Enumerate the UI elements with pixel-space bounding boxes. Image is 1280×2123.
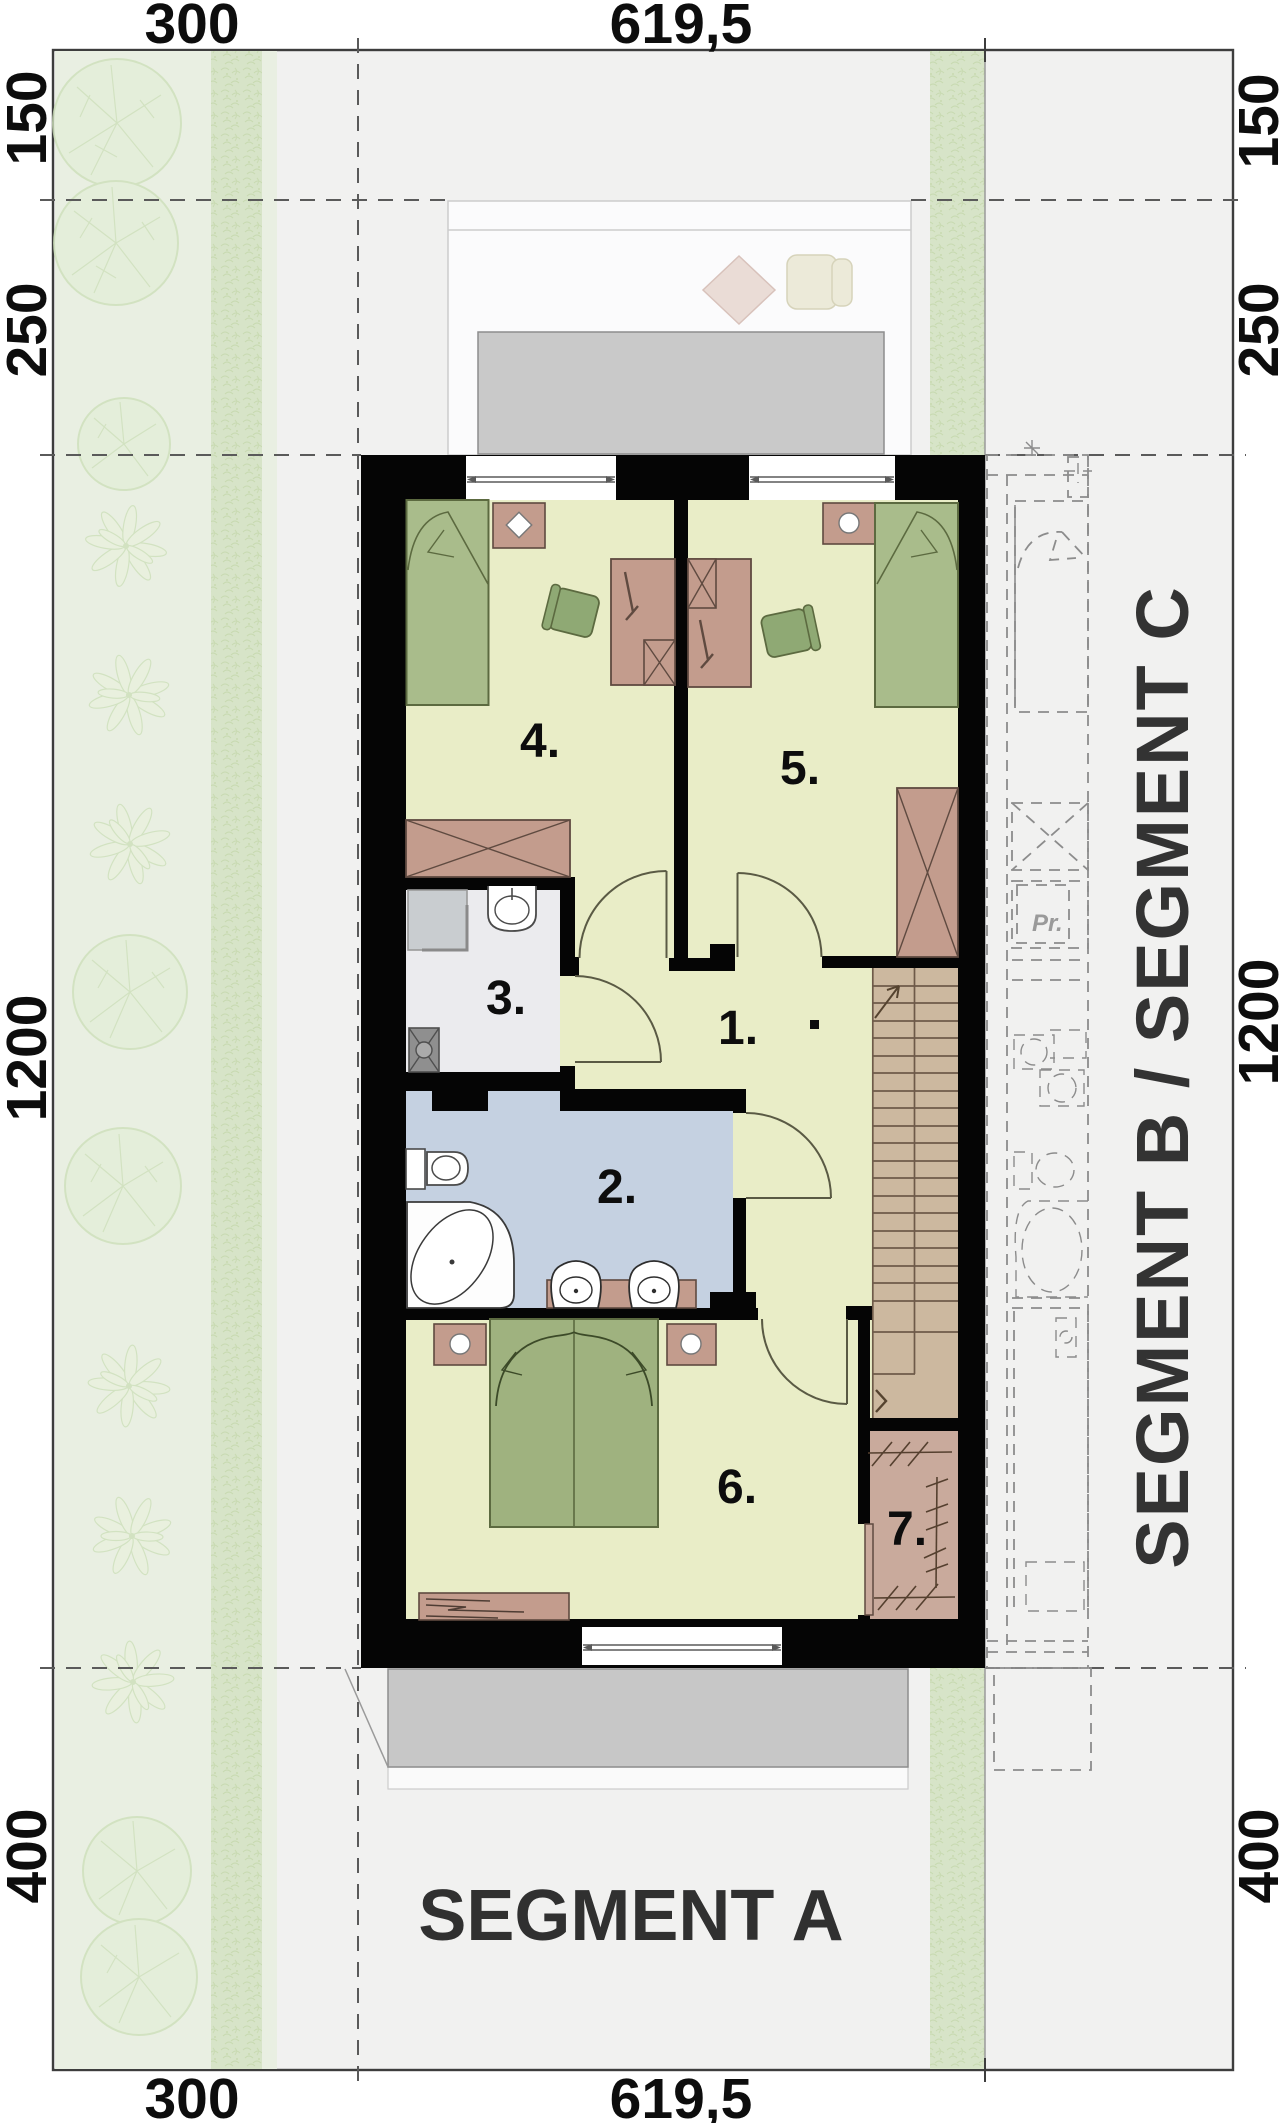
svg-text:619,5: 619,5 (610, 0, 753, 56)
svg-text:150: 150 (0, 70, 59, 165)
svg-text:SEGMENT B / SEGMENT C: SEGMENT B / SEGMENT C (1121, 585, 1204, 1569)
svg-text:400: 400 (1227, 1808, 1280, 1903)
svg-text:400: 400 (0, 1808, 59, 1903)
svg-text:150: 150 (1227, 73, 1280, 168)
svg-text:1200: 1200 (0, 995, 59, 1122)
svg-text:250: 250 (1227, 282, 1280, 377)
svg-text:1.: 1. (718, 1002, 758, 1055)
svg-text:SEGMENT A: SEGMENT A (418, 1876, 843, 1956)
svg-text:619,5: 619,5 (610, 2067, 753, 2123)
svg-text:250: 250 (0, 282, 59, 377)
svg-text:2.: 2. (597, 1161, 637, 1214)
svg-text:Pr.: Pr. (1032, 910, 1063, 937)
svg-text:300: 300 (144, 0, 239, 56)
svg-text:300: 300 (144, 2067, 239, 2123)
svg-text:6.: 6. (717, 1461, 757, 1514)
svg-text:1200: 1200 (1227, 959, 1280, 1086)
svg-text:5.: 5. (780, 742, 820, 795)
svg-text:3.: 3. (486, 972, 526, 1025)
svg-text:4.: 4. (520, 715, 560, 768)
svg-text:7.: 7. (887, 1503, 927, 1556)
